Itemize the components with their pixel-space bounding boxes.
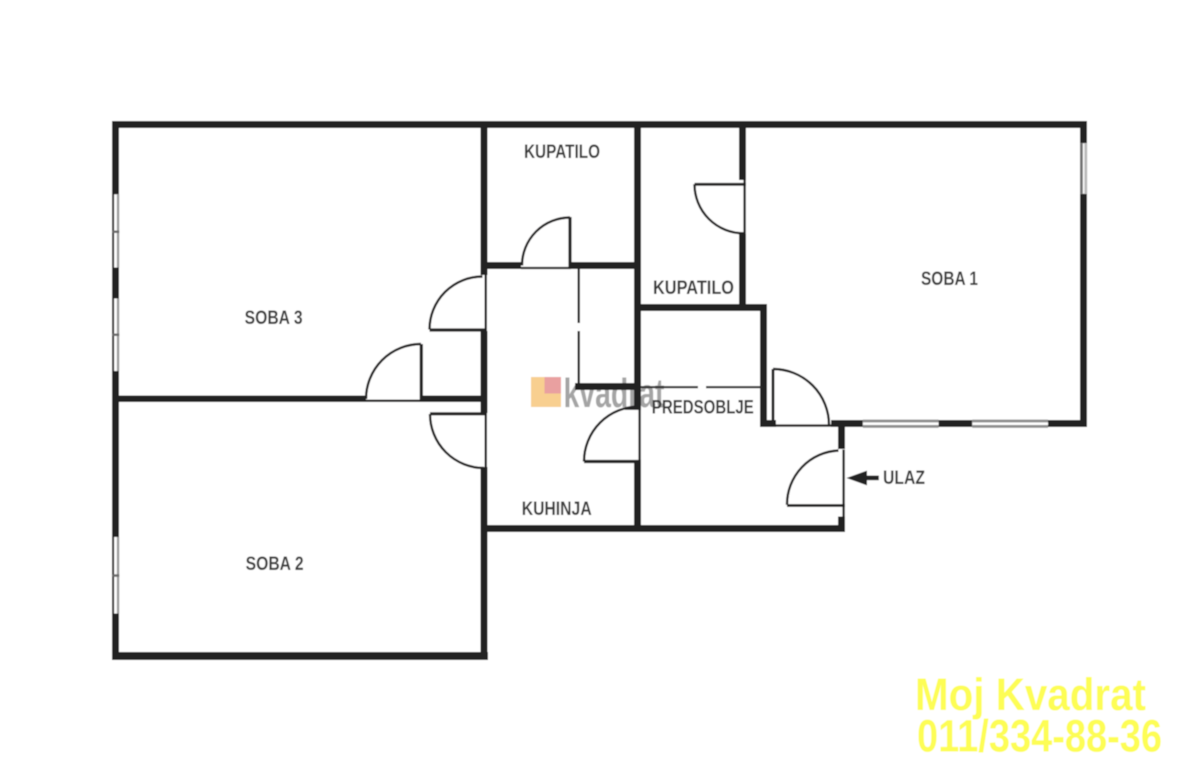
svg-text:KUPATILO: KUPATILO — [524, 142, 600, 163]
svg-text:SOBA 2: SOBA 2 — [246, 554, 304, 575]
svg-text:KUPATILO: KUPATILO — [653, 278, 734, 299]
svg-text:011/334-88-36: 011/334-88-36 — [917, 711, 1162, 762]
svg-text:SOBA 3: SOBA 3 — [245, 308, 303, 329]
svg-text:PREDSOBLJE: PREDSOBLJE — [652, 398, 754, 419]
svg-text:ULAZ: ULAZ — [883, 468, 925, 489]
svg-text:KUHINJA: KUHINJA — [522, 499, 592, 520]
svg-text:SOBA 1: SOBA 1 — [921, 269, 978, 290]
